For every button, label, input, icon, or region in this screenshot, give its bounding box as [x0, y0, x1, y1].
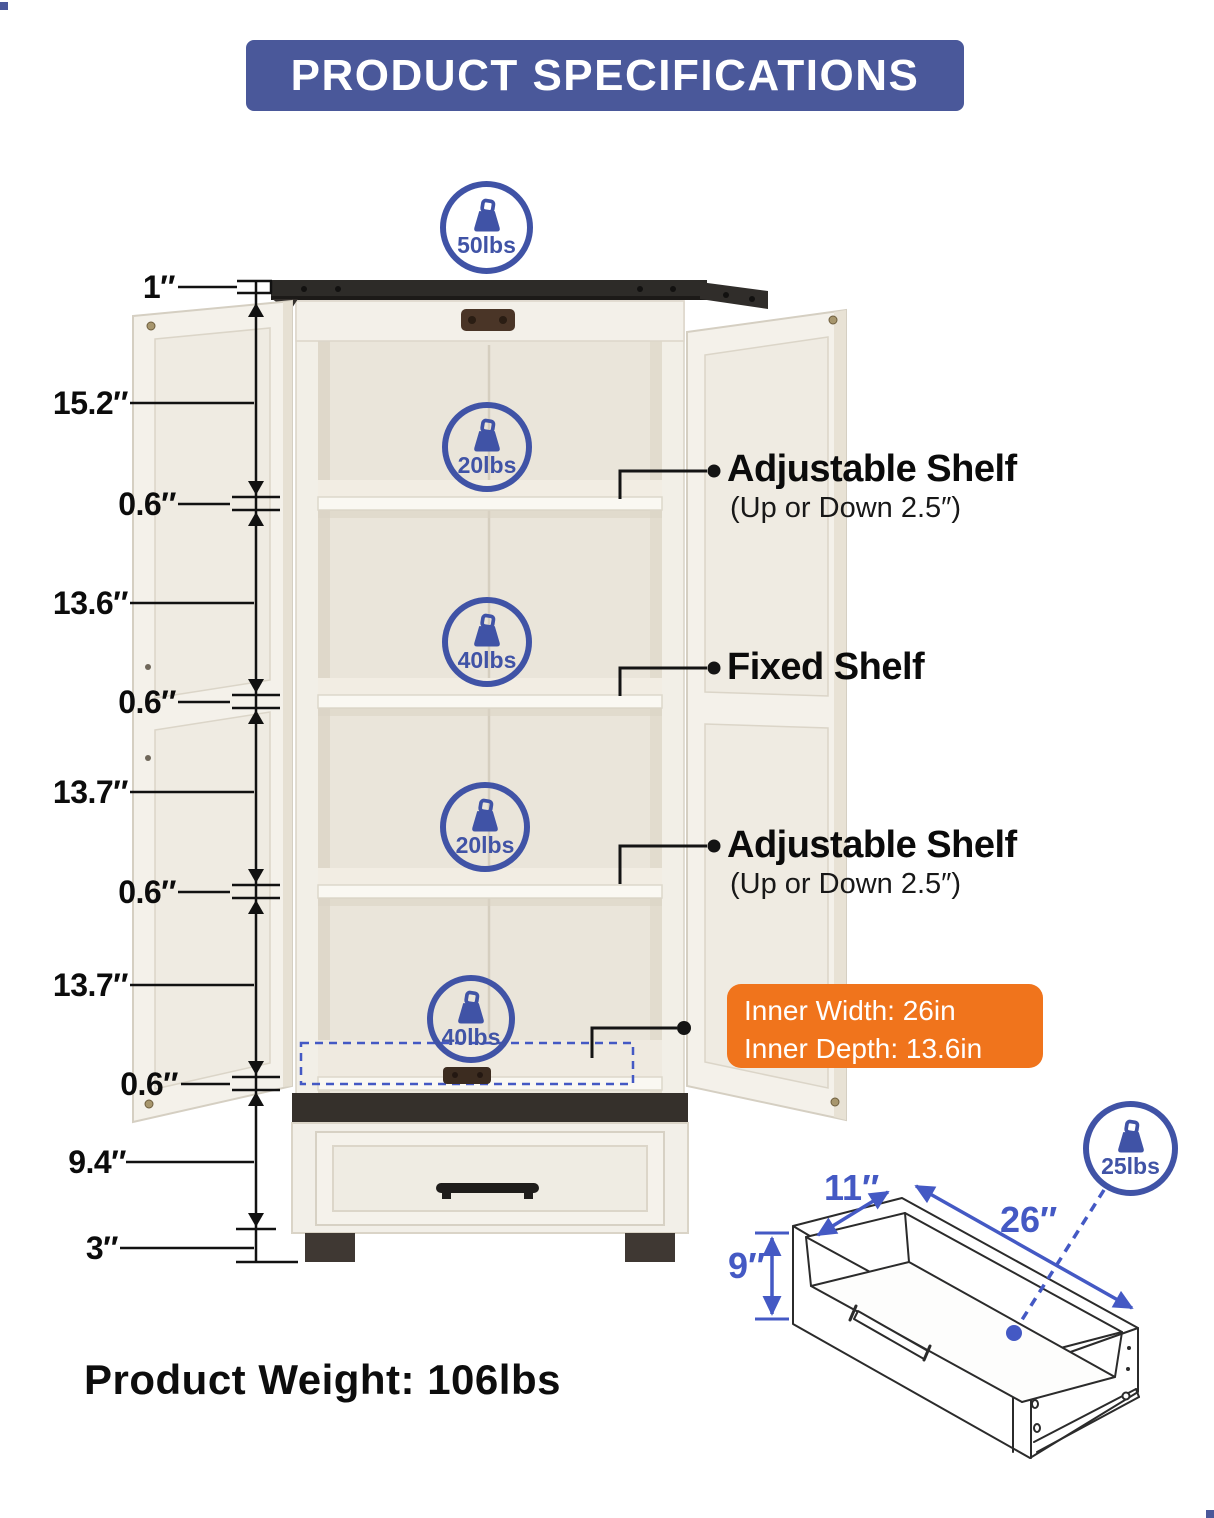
drawer-width-label: 26″: [1000, 1202, 1057, 1238]
product-specifications-sheet: PRODUCT SPECIFICATIONS 50lbs 20lbs 40lbs…: [0, 0, 1214, 1518]
callout-adjustable-shelf-bottom-subtitle: (Up or Down 2.5″): [730, 870, 961, 899]
callout-fixed-shelf-title: Fixed Shelf: [727, 648, 924, 686]
dimension-label-section-4: 13.7″: [8, 969, 128, 1001]
dimension-label-shelf-thickness-3: 0.6″: [56, 876, 176, 908]
drawer-front: [316, 1132, 664, 1225]
product-weight-text: Product Weight: 106lbs: [84, 1356, 561, 1404]
inner-depth-value: Inner Depth: 13.6in: [744, 1030, 1026, 1068]
weight-icon: [467, 613, 507, 649]
weight-capacity-badge-top: 50lbs: [440, 181, 533, 274]
door-latch-bottom: [443, 1067, 491, 1084]
weight-capacity-badge-shelf-2: 40lbs: [442, 597, 532, 687]
corner-mark-bottom-right: [1206, 1510, 1214, 1518]
callout-adjustable-shelf-bottom-title: Adjustable Shelf: [727, 826, 1017, 864]
dimension-label-shelf-thickness-1: 0.6″: [56, 488, 176, 520]
weight-capacity-label: 40lbs: [458, 647, 517, 674]
dimension-label-shelf-thickness-2: 0.6″: [56, 686, 176, 718]
door-latch-top: [461, 309, 515, 331]
inner-dimensions-box: Inner Width: 26in Inner Depth: 13.6in: [727, 984, 1043, 1068]
dimension-label-drawer-section: 9.4″: [6, 1146, 126, 1178]
weight-icon: [451, 990, 491, 1026]
corner-mark-top-left: [0, 2, 8, 10]
inner-width-value: Inner Width: 26in: [744, 992, 1026, 1030]
drawer-capacity-anchor-dot: [1006, 1325, 1022, 1341]
weight-icon: [465, 798, 505, 834]
cabinet-foot-left: [305, 1233, 355, 1262]
dimension-label-section-1: 15.2″: [8, 387, 128, 419]
drawer-depth-label: 11″: [824, 1170, 879, 1206]
page-title: PRODUCT SPECIFICATIONS: [246, 40, 964, 111]
callout-adjustable-shelf-top-title: Adjustable Shelf: [727, 450, 1017, 488]
weight-capacity-label: 20lbs: [456, 832, 515, 859]
cabinet-diagram: [0, 0, 1214, 1518]
weight-capacity-badge-drawer: 25lbs: [1083, 1101, 1178, 1196]
weight-capacity-label: 40lbs: [442, 1024, 501, 1051]
callout-adjustable-shelf-top-subtitle: (Up or Down 2.5″): [730, 494, 961, 523]
weight-capacity-label: 20lbs: [458, 452, 517, 479]
dimension-label-section-3: 13.7″: [8, 776, 128, 808]
weight-icon: [1111, 1119, 1151, 1155]
shelf-3: [318, 868, 662, 906]
weight-capacity-badge-shelf-4: 40lbs: [427, 975, 515, 1063]
cabinet-foot-right: [625, 1233, 675, 1262]
drawer-section-top-band: [292, 1093, 688, 1123]
weight-capacity-label: 50lbs: [457, 232, 516, 259]
weight-icon: [467, 418, 507, 454]
dimension-label-legs: 3″: [0, 1232, 118, 1264]
dimension-label-top-panel: 1″: [55, 271, 175, 303]
weight-capacity-badge-shelf-1: 20lbs: [442, 402, 532, 492]
weight-icon: [467, 198, 507, 234]
drawer-height-label: 9″: [728, 1248, 765, 1284]
dimension-label-bottom-panel: 0.6″: [58, 1068, 178, 1100]
weight-capacity-badge-shelf-3: 20lbs: [440, 782, 530, 872]
weight-capacity-label: 25lbs: [1101, 1153, 1160, 1180]
drawer-diagram: [793, 1198, 1139, 1458]
dimension-label-section-2: 13.6″: [8, 587, 128, 619]
